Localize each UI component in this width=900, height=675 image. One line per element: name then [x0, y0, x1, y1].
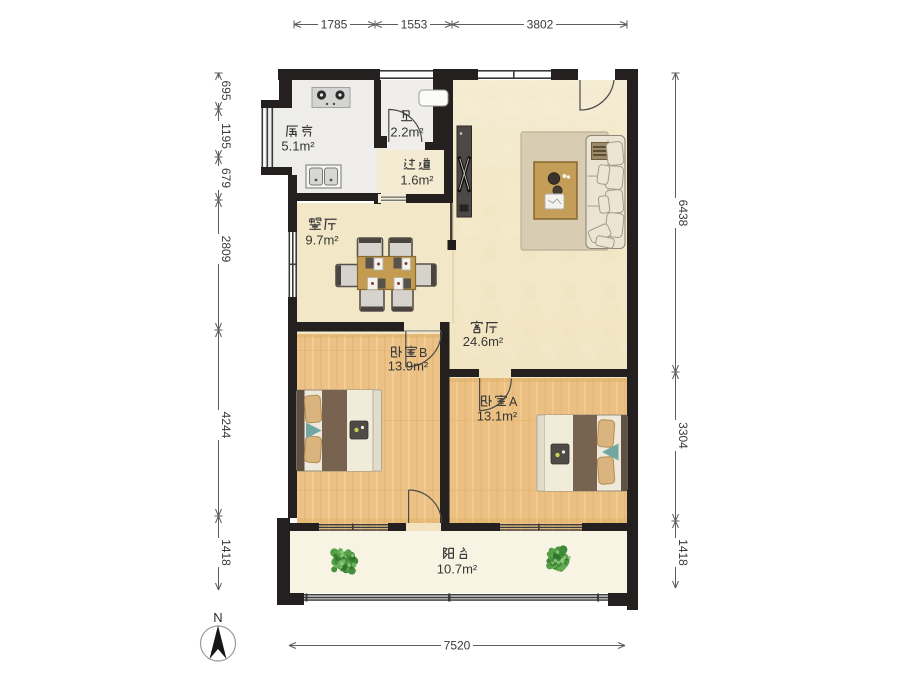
svg-text:1553: 1553: [401, 18, 428, 32]
svg-text:1785: 1785: [321, 18, 348, 32]
svg-text:4244: 4244: [219, 412, 233, 439]
svg-text:N: N: [213, 610, 222, 625]
svg-text:679: 679: [219, 168, 233, 188]
svg-text:2809: 2809: [219, 236, 233, 263]
svg-text:10.7m²: 10.7m²: [437, 562, 478, 577]
svg-text:24.6m²: 24.6m²: [463, 334, 504, 349]
svg-text:13.1m²: 13.1m²: [477, 409, 518, 424]
svg-text:695: 695: [219, 80, 233, 100]
svg-text:A: A: [509, 395, 518, 409]
svg-text:5.1m²: 5.1m²: [281, 139, 315, 154]
svg-text:6438: 6438: [676, 200, 690, 227]
svg-text:1195: 1195: [219, 123, 233, 149]
svg-text:13.9m²: 13.9m²: [388, 359, 429, 374]
svg-text:2.2m²: 2.2m²: [390, 125, 424, 140]
svg-text:3304: 3304: [676, 422, 690, 449]
svg-text:3802: 3802: [527, 18, 554, 32]
svg-text:1418: 1418: [676, 539, 690, 566]
svg-text:7520: 7520: [444, 639, 471, 653]
svg-text:9.7m²: 9.7m²: [305, 233, 339, 248]
svg-text:1.6m²: 1.6m²: [400, 173, 434, 188]
svg-text:1418: 1418: [219, 539, 233, 566]
